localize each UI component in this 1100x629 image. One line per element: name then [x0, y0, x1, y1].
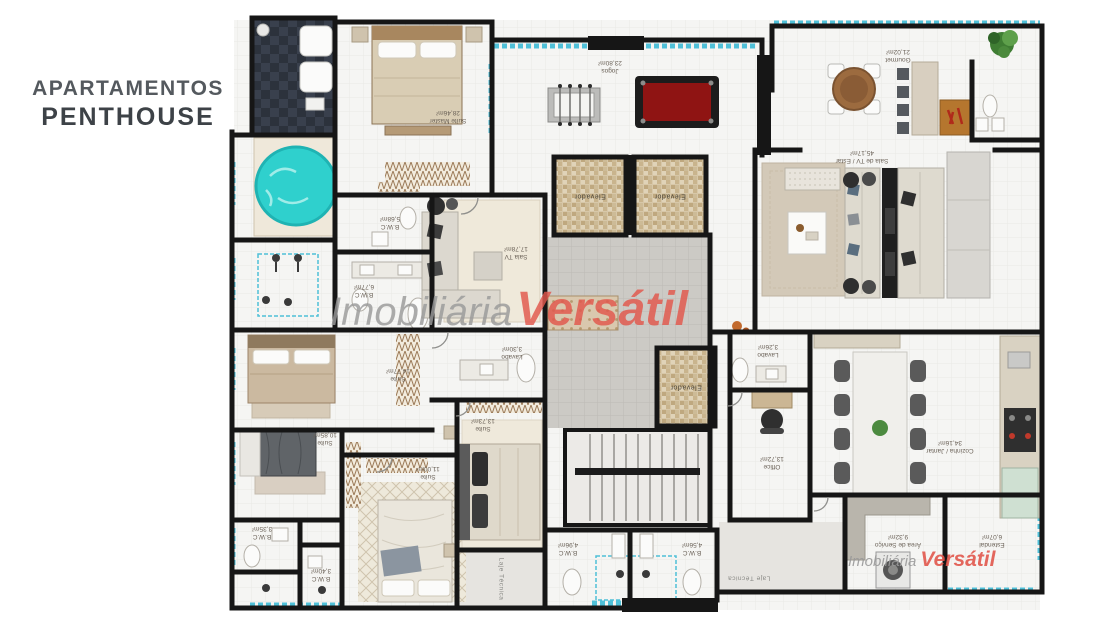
room-label-jogos: Jogos23,80m² [598, 58, 622, 74]
room-label-suite-1373: Suíte13,73m² [471, 416, 495, 432]
bar-counter [912, 62, 938, 135]
grill [940, 100, 970, 135]
elevator-label-2: Elevador [654, 193, 686, 200]
room-label-estendal: Estendal6,07m² [979, 532, 1004, 548]
foosball-table [548, 84, 600, 126]
room-label-suite-1477: Suíte14,77m² [386, 366, 410, 382]
plant-icon [872, 420, 888, 436]
wardrobe-suite-1100-left [346, 442, 361, 508]
elevator-label-1: Elevador [574, 193, 606, 200]
tv-cabinet [947, 152, 990, 298]
room-label-bwc-496: B.W.C4,96m² [558, 540, 578, 556]
room-label-suite-master: Suíte Master28,46m² [430, 108, 467, 124]
room-label-area-servico: Área de Serviço9,32m² [875, 532, 921, 548]
room-label-bwc-340: B.W.C3,40m² [311, 566, 331, 582]
room-label-office: Office13,72m² [760, 454, 784, 470]
room-label-lavabo-326: Lavabo3,26m² [757, 342, 778, 358]
room-label-cozinha-jantar: Cozinha / Jantar34,16m² [926, 438, 973, 454]
living-furniture [762, 152, 990, 298]
room-label-sala-tv-estar: Sala de TV / Estar45,17m² [836, 148, 889, 164]
room-label-bwc-568: B.W.C5,68m² [380, 214, 400, 230]
entry-rug [378, 182, 420, 192]
jacuzzi [254, 138, 336, 236]
room-label-suite-1085: Suíte10,85m² [313, 430, 337, 446]
floorplan-drawing [0, 0, 1100, 629]
room-label-bwc-335: B.W.C3,35m² [252, 524, 272, 540]
room-label-suite-1100: Suíte11,00m² [416, 464, 439, 480]
room-label-sala-tv: Sala TV17,78m² [504, 244, 528, 260]
penthouse-floorplan: APARTAMENTOS PENTHOUSE [0, 0, 1100, 629]
room-label-gourmet: Gourmet21,02m² [885, 47, 910, 63]
room-label-bwc-456: B.W.C4,56m² [682, 540, 702, 556]
room-label-bwc-677: B.W.C6,77m² [354, 282, 374, 298]
laje-tecnica-label-left: Laje Técnica [498, 558, 505, 601]
pool-table [635, 76, 719, 128]
elevator-label-3: Elevador [670, 384, 702, 391]
laje-tecnica-label-right: Laje Técnica [728, 575, 771, 582]
stairs [565, 430, 710, 525]
room-label-lavabo-330: Lavabo3,30m² [501, 344, 522, 360]
